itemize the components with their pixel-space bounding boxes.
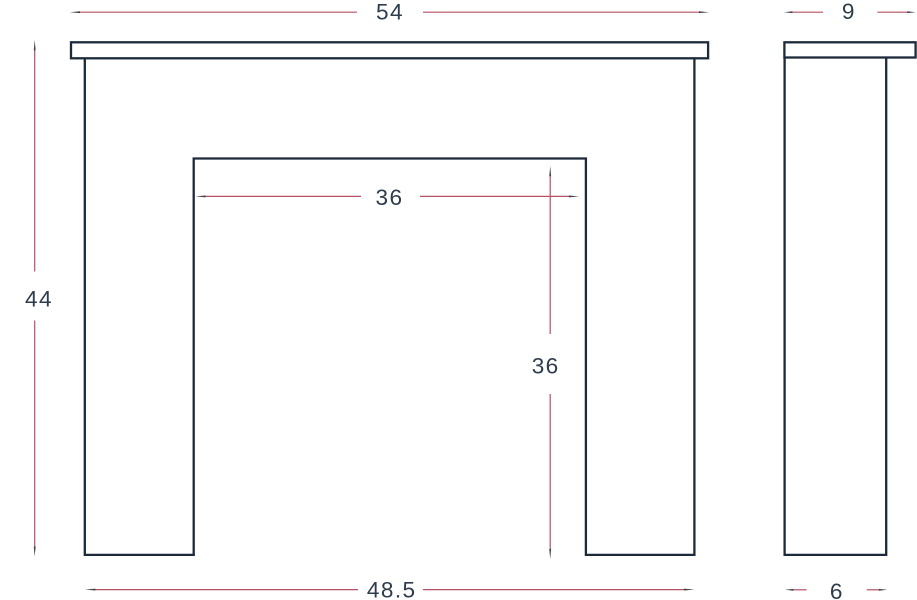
svg-text:54: 54 [376, 0, 404, 25]
svg-text:44: 44 [25, 286, 53, 311]
svg-text:9: 9 [842, 0, 856, 24]
svg-text:36: 36 [532, 354, 560, 379]
svg-text:6: 6 [830, 579, 844, 600]
svg-text:36: 36 [376, 185, 404, 210]
svg-text:48.5: 48.5 [367, 577, 417, 600]
